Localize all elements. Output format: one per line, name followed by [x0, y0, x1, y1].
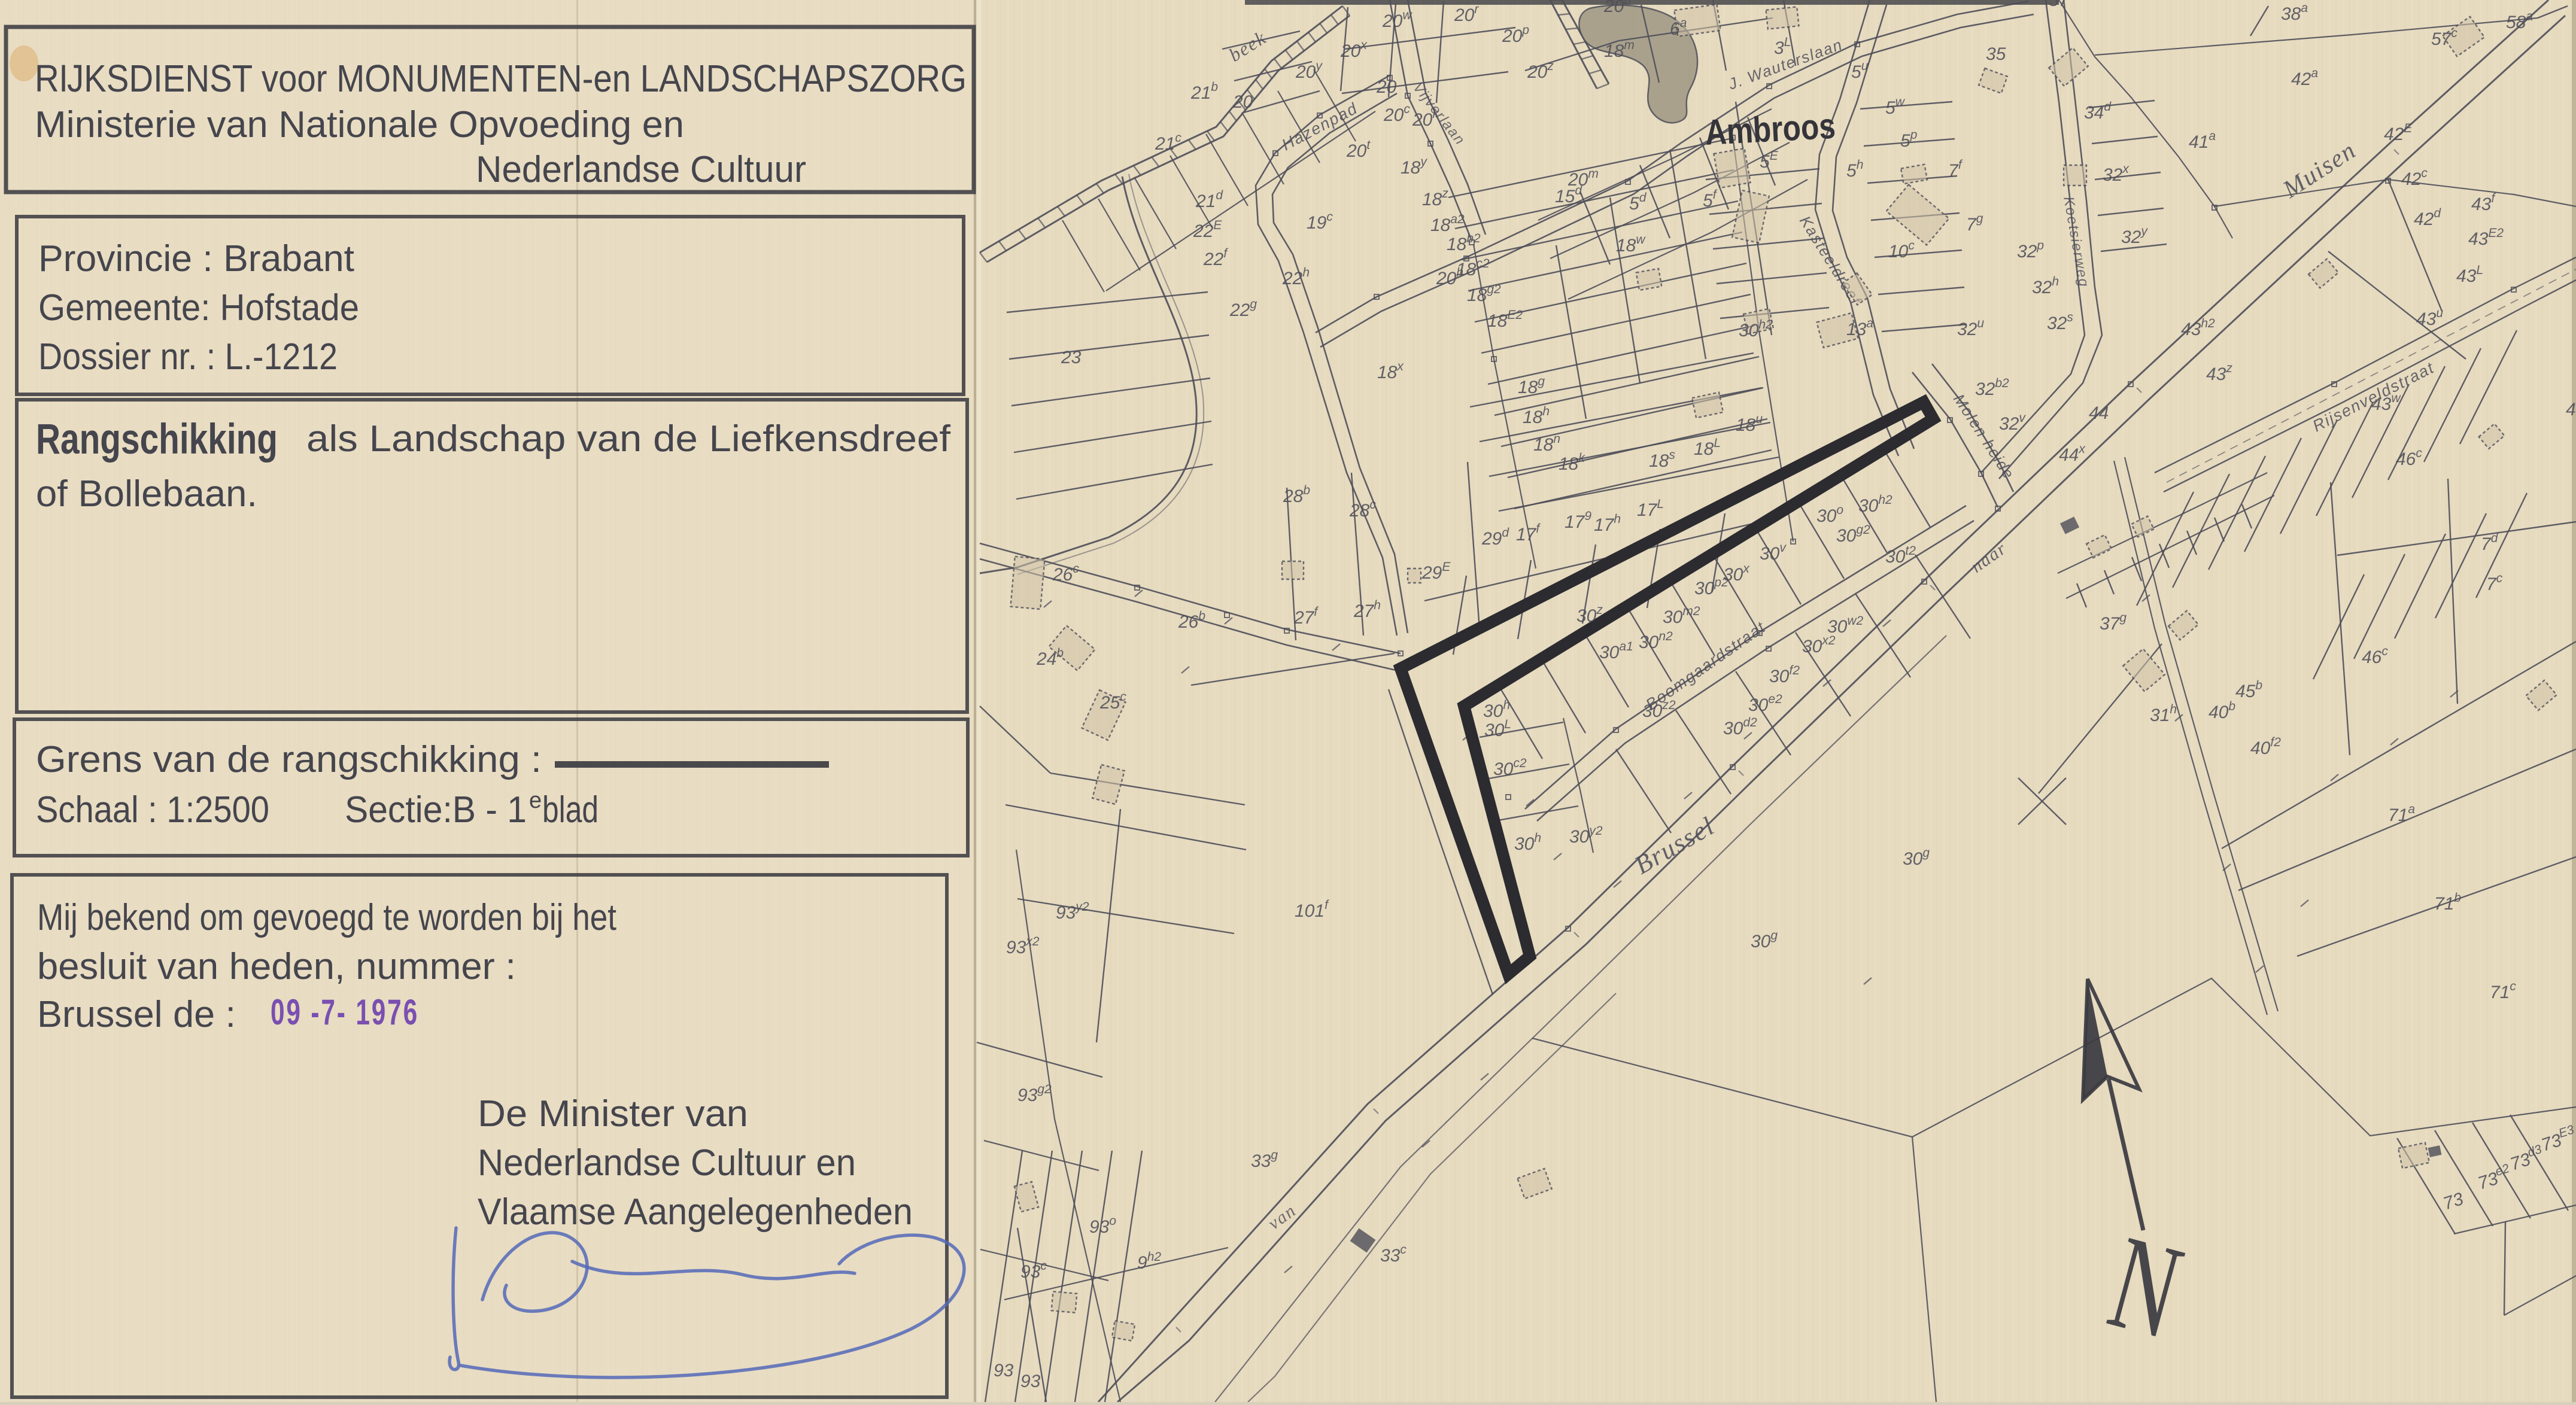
svg-text:Grens van de rangschikking :: Grens van de rangschikking : [36, 739, 542, 780]
svg-text:Schaal : 1:2500: Schaal : 1:2500 [36, 789, 269, 831]
svg-text:als Landschap van de Liefkensd: als Landschap van de Liefkensdreef [306, 418, 951, 460]
svg-text:09 -7- 1976: 09 -7- 1976 [271, 992, 419, 1032]
svg-text:20: 20 [1232, 92, 1253, 112]
svg-text:RĲKSDIENST voor MONUMENTEN-en: RĲKSDIENST voor MONUMENTEN-en LANDSCHAPS… [35, 57, 967, 100]
svg-text:Brussel de :: Brussel de : [37, 994, 236, 1035]
svg-text:Gemeente: Hofstade: Gemeente: Hofstade [38, 287, 359, 329]
svg-text:23: 23 [1061, 348, 1082, 367]
svg-text:Vlaamse Aangelegenheden: Vlaamse Aangelegenheden [478, 1191, 913, 1233]
svg-text:Provincie : Brabant: Provincie : Brabant [38, 238, 354, 279]
svg-text:93: 93 [1020, 1371, 1041, 1391]
svg-text:Dossier nr. : L.-1212: Dossier nr. : L.-1212 [38, 336, 338, 378]
svg-text:Ambroos: Ambroos [1704, 106, 1836, 153]
svg-text:93: 93 [994, 1361, 1014, 1380]
svg-text:20: 20 [1376, 77, 1397, 97]
svg-text:44: 44 [2089, 403, 2109, 423]
svg-text:57: 57 [2049, 0, 2070, 10]
svg-text:101f: 101f [1295, 898, 1329, 921]
svg-text:besluit van heden, nummer :: besluit van heden, nummer : [37, 946, 516, 987]
svg-text:Ministerie van Nationale Opvoe: Ministerie van Nationale Opvoeding en [35, 104, 684, 145]
svg-text:Nederlandse Cultuur en: Nederlandse Cultuur en [478, 1142, 856, 1184]
svg-text:of Bollebaan.: of Bollebaan. [36, 473, 257, 515]
svg-text:Nederlandse Cultuur: Nederlandse Cultuur [476, 149, 806, 190]
svg-text:blad: blad [542, 789, 599, 831]
svg-text:De Minister van: De Minister van [478, 1093, 748, 1135]
svg-text:Mij bekend om gevoegd te worde: Mij bekend om gevoegd te worden bij het [37, 897, 616, 938]
svg-text:47u: 47u [2566, 397, 2576, 419]
svg-text:e: e [529, 788, 542, 813]
svg-text:Rangschikking: Rangschikking [36, 416, 278, 463]
svg-text:Sectie:B - 1: Sectie:B - 1 [345, 789, 527, 831]
svg-text:35: 35 [1986, 44, 2006, 64]
